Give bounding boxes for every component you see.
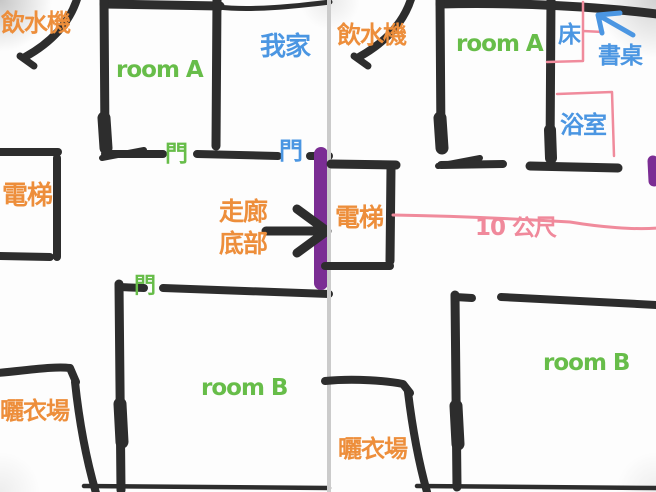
corridor-end-line2: 底部 xyxy=(214,228,272,260)
corridor-end-label: 走廊 底部 xyxy=(214,196,272,260)
corridor-end-purple-sliver-r xyxy=(653,161,654,181)
room-b-top-wall-r xyxy=(501,297,656,305)
elevator-top-wall-r xyxy=(331,164,396,165)
room-b-left-wall-r xyxy=(455,295,457,487)
room-a-door-label: 門 xyxy=(165,142,187,166)
room-a-top-wall xyxy=(104,4,220,6)
corridor-end-door-label: 門 xyxy=(279,139,302,164)
water-dispenser-label-r: 飲水機 xyxy=(337,23,406,48)
drying-area-top-wall xyxy=(0,367,76,382)
bottom-wall xyxy=(84,486,329,488)
hall-top-wall-2 xyxy=(197,154,278,156)
elevator-bottom-wall xyxy=(0,256,50,257)
room-a-left-wall-blob xyxy=(104,118,106,148)
my-home-label: 我家 xyxy=(260,34,310,61)
room-b-left-wall-blob-r xyxy=(456,406,458,444)
drying-area-label-r: 曬衣場 xyxy=(338,437,407,462)
elevator-label: 電梯 xyxy=(2,183,52,210)
room-a-label-r: room A xyxy=(456,32,543,56)
bathroom-label: 浴室 xyxy=(560,113,606,138)
floorplan-canvas xyxy=(0,0,656,492)
top-wall-extension xyxy=(218,2,330,8)
hall-top-wall-1-r xyxy=(441,164,503,165)
room-a-label: room A xyxy=(116,58,203,82)
drying-area-right-wall xyxy=(75,382,96,492)
room-b-left-wall xyxy=(119,284,121,490)
drying-area-top-wall-r xyxy=(325,380,410,393)
room-b-label-r: room B xyxy=(543,351,629,375)
elevator-label-r: 電梯 xyxy=(335,205,383,231)
water-dispenser-label: 飲水機 xyxy=(1,11,70,36)
blue-arrow-up-left xyxy=(598,13,633,35)
room-a-right-wall xyxy=(216,0,217,146)
bottom-wall-r xyxy=(417,486,656,488)
room-b-left-wall-blob xyxy=(120,404,122,442)
room-b-label: room B xyxy=(201,376,287,400)
distance-label: 10 公尺 xyxy=(475,216,556,240)
room-b-top-wall xyxy=(163,288,329,294)
panel-divider xyxy=(327,0,331,492)
drying-area-label: 曬衣場 xyxy=(0,399,69,424)
elevator-right-wall-r xyxy=(390,168,391,261)
hall-top-wall-2-r xyxy=(530,166,618,168)
floorplan-screenshot: 飲水機 room A 我家 門 門 電梯 走廊 底部 門 room B 曬衣場 … xyxy=(0,0,656,492)
drying-area-right-wall-r xyxy=(408,392,427,492)
right-floorplan-strokes xyxy=(325,0,656,492)
corridor-end-line1: 走廊 xyxy=(214,196,272,228)
bed-label: 床 xyxy=(558,23,580,47)
desk-label: 書桌 xyxy=(598,44,642,68)
room-a-left-wall-blob-r xyxy=(440,118,442,148)
room-a-partition-blob-r xyxy=(550,130,551,158)
room-b-door-stub-r xyxy=(455,297,472,298)
room-b-door-label: 門 xyxy=(134,275,155,298)
